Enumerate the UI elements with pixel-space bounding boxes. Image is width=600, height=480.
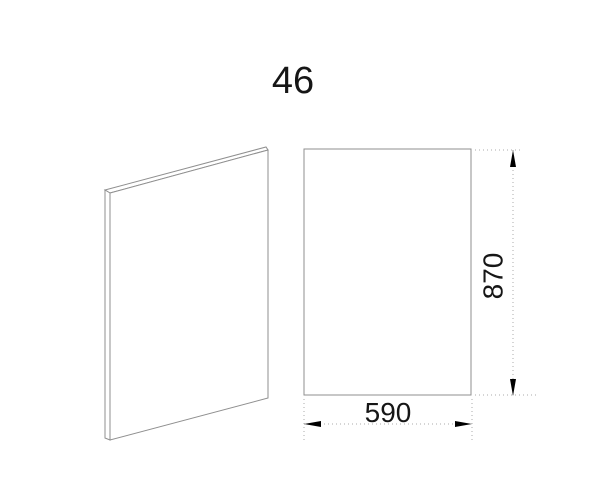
panel-drawing-svg: 46 870 590: [0, 0, 600, 480]
panel-iso-front-face: [110, 150, 268, 440]
technical-drawing-canvas: 46 870 590: [0, 0, 600, 480]
width-dim-right-arrow-icon: [455, 421, 472, 427]
height-dim-up-arrow-icon: [510, 150, 516, 167]
height-dim-down-arrow-icon: [510, 379, 516, 396]
panel-iso-left-edge-face: [105, 190, 110, 440]
front-view-outline: [304, 149, 471, 395]
height-dimension-value: 870: [477, 253, 508, 300]
width-dimension: 590: [304, 397, 472, 441]
panel-front-view: [304, 149, 471, 395]
panel-isometric-view: [105, 147, 268, 440]
width-dimension-value: 590: [365, 397, 412, 428]
drawing-title: 46: [272, 60, 314, 102]
height-dimension: 870: [475, 150, 538, 396]
width-dim-left-arrow-icon: [304, 421, 321, 427]
